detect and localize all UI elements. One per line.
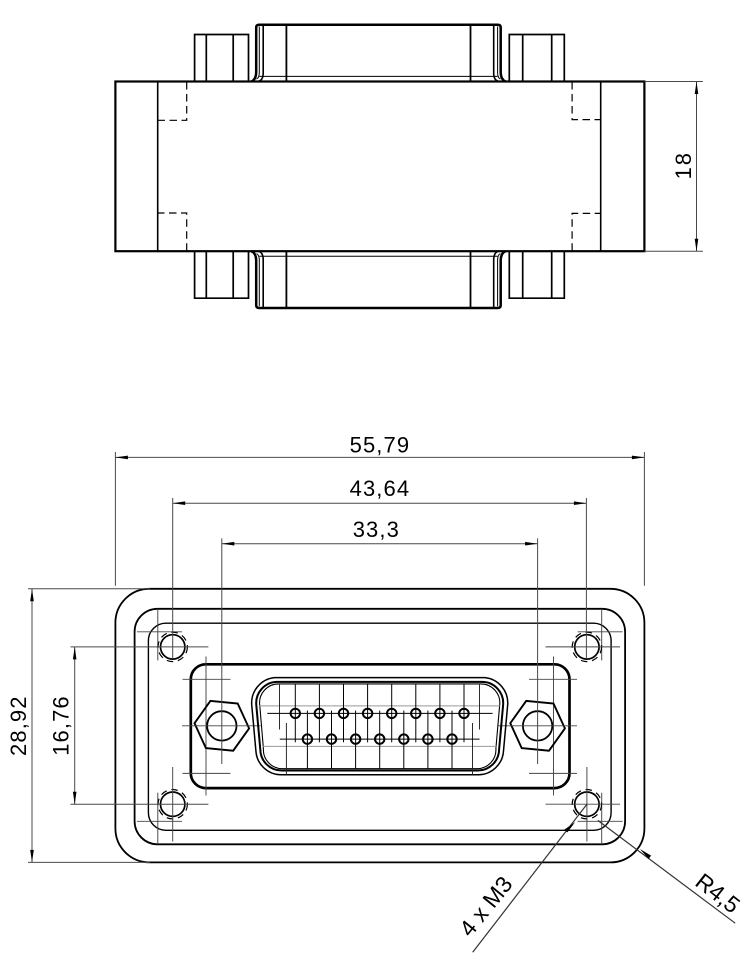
svg-text:43,64: 43,64 bbox=[350, 476, 411, 501]
svg-text:33,3: 33,3 bbox=[353, 517, 400, 542]
svg-text:55,79: 55,79 bbox=[350, 432, 411, 457]
svg-text:16,76: 16,76 bbox=[49, 695, 74, 756]
svg-text:28,92: 28,92 bbox=[6, 695, 31, 756]
svg-text:18: 18 bbox=[671, 151, 696, 179]
